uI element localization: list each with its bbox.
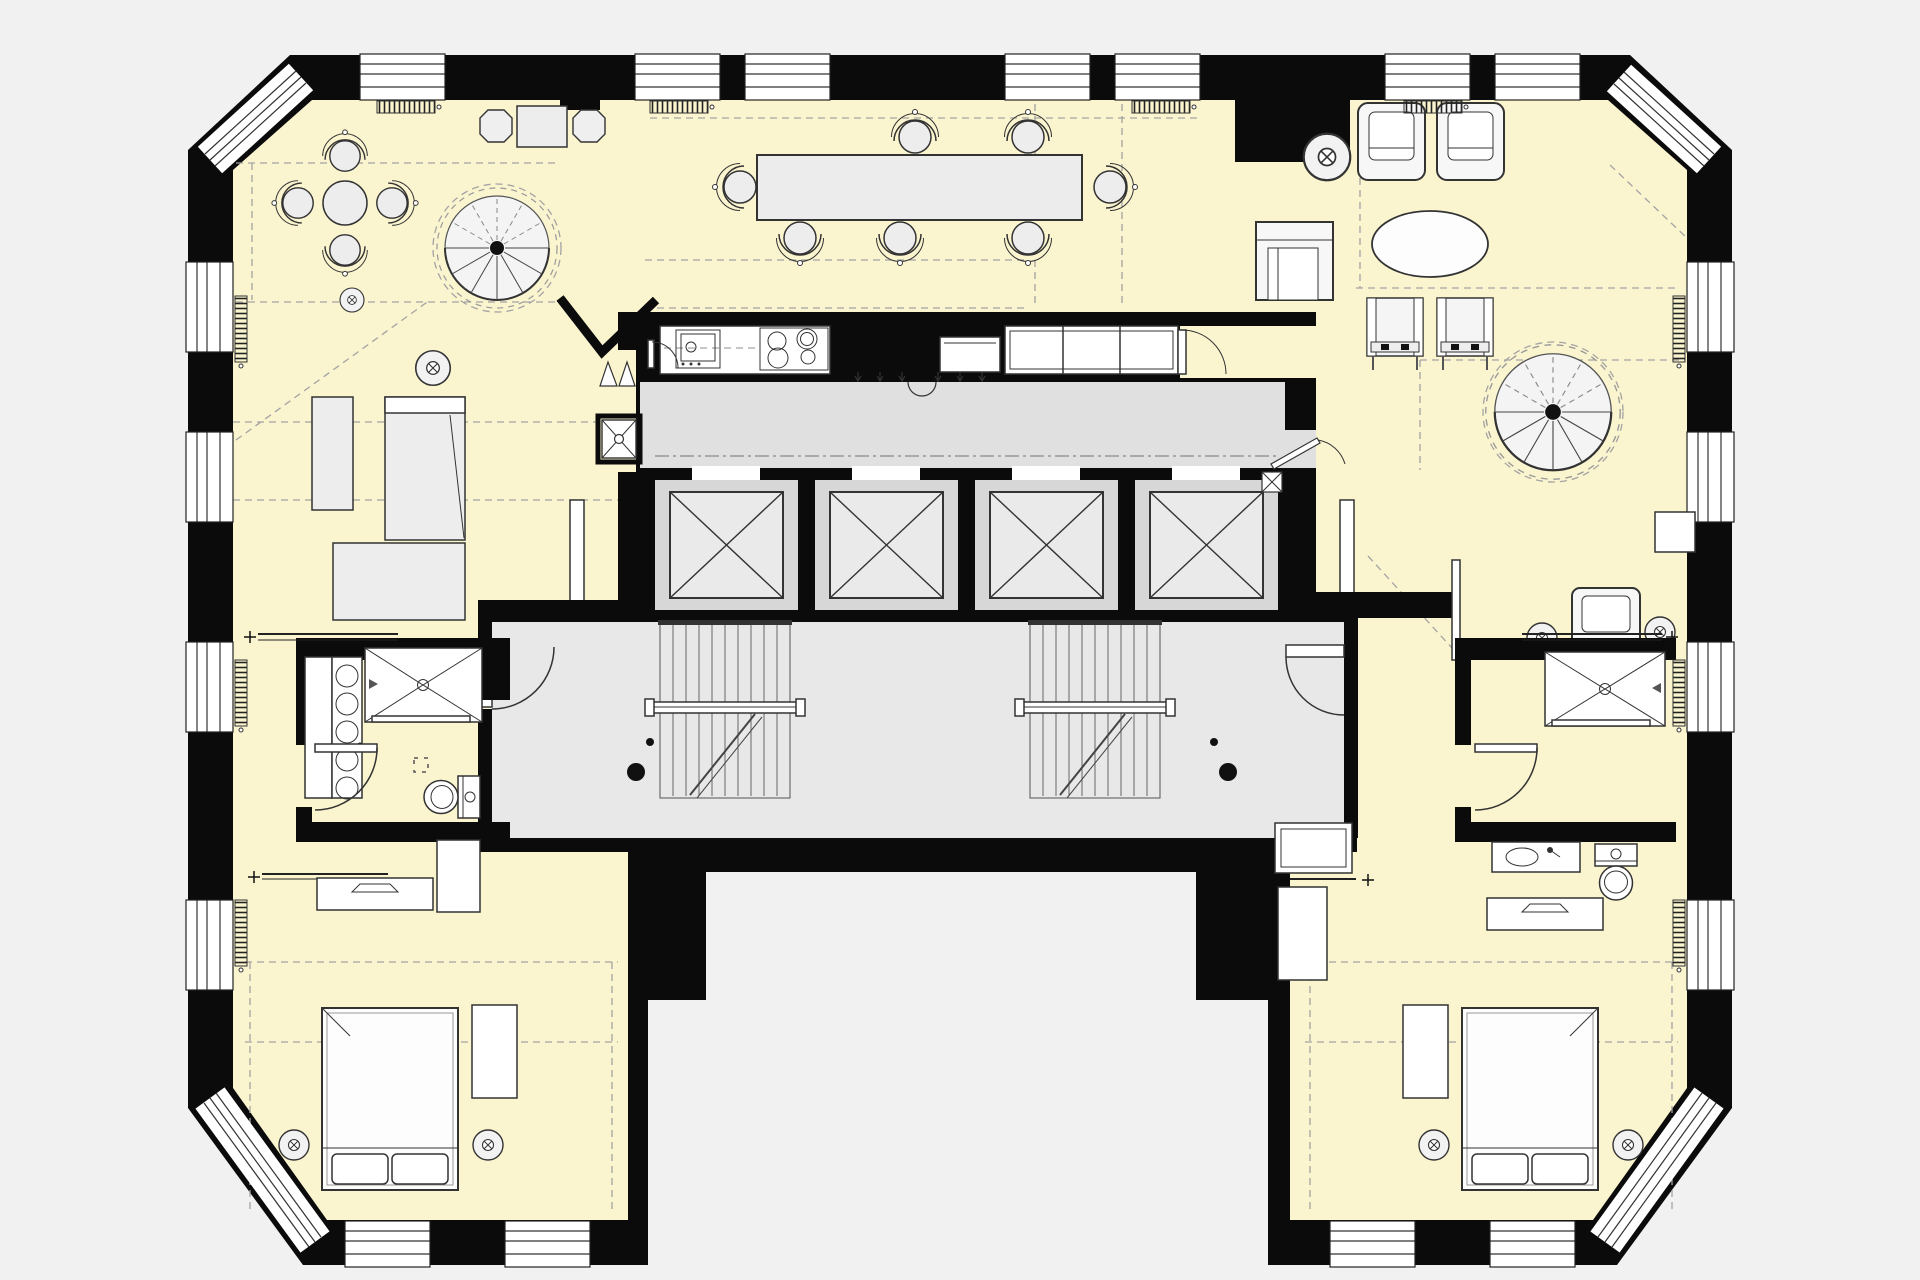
vanity-sink xyxy=(1492,842,1580,872)
floor-plan xyxy=(0,0,1920,1280)
bedroom-bench xyxy=(1403,1005,1448,1098)
octagonal-stool xyxy=(480,110,512,142)
elevator-door xyxy=(692,466,760,480)
radiator-icon xyxy=(377,101,441,113)
elevator-shaft xyxy=(975,480,1118,610)
shower xyxy=(1545,652,1665,726)
dresser xyxy=(1487,898,1603,930)
oval-coffee-table xyxy=(1372,211,1488,277)
radiator-icon xyxy=(650,101,714,113)
towel-radiator xyxy=(305,657,363,799)
club-armchair xyxy=(1256,222,1333,300)
shaft-closet-right xyxy=(1262,472,1282,492)
shower xyxy=(365,648,482,722)
radiator-icon xyxy=(1673,296,1685,368)
lounge-armchair xyxy=(1437,103,1504,180)
radiator-icon xyxy=(1673,900,1685,972)
refrigerator xyxy=(940,337,1000,372)
nightstand xyxy=(1613,1130,1643,1160)
lounge-armchair xyxy=(1358,103,1425,180)
entry-bench xyxy=(1275,823,1352,873)
wardrobe xyxy=(437,840,480,912)
elevator-shaft xyxy=(655,480,798,610)
pillow xyxy=(332,1154,388,1184)
kitchen-corridor xyxy=(640,382,1285,468)
side-table xyxy=(340,288,364,312)
bedroom-bench xyxy=(472,1005,517,1098)
dumbwaiter-shaft xyxy=(602,420,636,458)
radiator-icon xyxy=(235,900,247,972)
column-dot xyxy=(1219,763,1237,781)
radiator-icon xyxy=(1132,101,1196,113)
kitchen-counter xyxy=(660,326,830,374)
pillow xyxy=(1472,1154,1528,1184)
elevator-door xyxy=(1012,466,1080,480)
elevator-shaft xyxy=(815,480,958,610)
pillow xyxy=(1532,1154,1588,1184)
radiator-icon xyxy=(235,660,247,732)
kitchen-cabinets xyxy=(1005,326,1178,374)
dining-table xyxy=(757,155,1082,220)
elevator-door xyxy=(852,466,920,480)
wall-right-entry xyxy=(1316,592,1460,618)
stair-hall xyxy=(490,622,1345,838)
radiator-icon xyxy=(235,296,247,368)
pillow xyxy=(392,1154,448,1184)
elevator-shaft xyxy=(1135,480,1278,610)
round-side-table xyxy=(416,351,451,386)
round-side-table xyxy=(1304,134,1351,181)
wall-table xyxy=(1655,512,1695,552)
floor-plan-page xyxy=(0,0,1920,1280)
radiator-icon xyxy=(1673,660,1685,732)
nightstand xyxy=(279,1130,309,1160)
bed xyxy=(322,1008,458,1190)
dresser xyxy=(317,878,433,910)
wall-leg-left xyxy=(628,850,706,1000)
octagonal-stool xyxy=(573,110,605,142)
stairwell-right xyxy=(1015,620,1175,798)
bench xyxy=(312,397,353,510)
nightstand xyxy=(473,1130,503,1160)
radiator-icon xyxy=(1404,101,1468,113)
column-dot xyxy=(627,763,645,781)
stairwell-left xyxy=(645,620,805,798)
entry-wardrobe xyxy=(1278,887,1327,980)
bed xyxy=(1462,1008,1598,1190)
nightstand xyxy=(1419,1130,1449,1160)
window-icon xyxy=(360,54,445,100)
writing-desk xyxy=(480,106,605,147)
elevator-door xyxy=(1172,466,1240,480)
round-table xyxy=(323,181,367,225)
